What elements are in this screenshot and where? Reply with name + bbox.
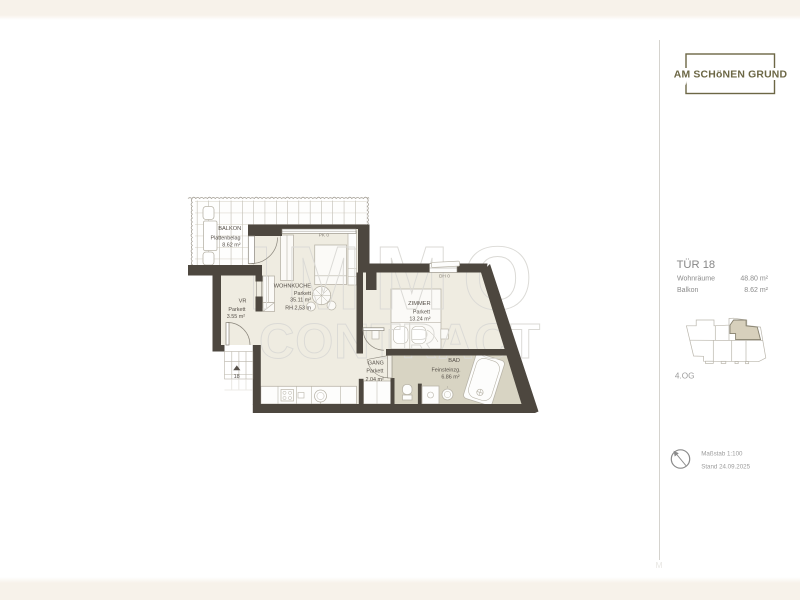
svg-text:ZIMMER: ZIMMER: [408, 301, 430, 307]
svg-text:DH 0: DH 0: [439, 273, 450, 279]
svg-text:Parkett: Parkett: [294, 291, 312, 297]
svg-text:TÜR 18: TÜR 18: [677, 259, 716, 271]
svg-text:48.80 m²: 48.80 m²: [740, 275, 768, 282]
svg-text:8.62 m²: 8.62 m²: [744, 287, 768, 294]
svg-text:PK 0: PK 0: [319, 232, 330, 238]
svg-text:GANG: GANG: [368, 360, 384, 366]
svg-text:M: M: [656, 560, 663, 570]
svg-text:35.11 m²: 35.11 m²: [290, 298, 311, 304]
svg-text:13.24 m²: 13.24 m²: [409, 316, 430, 322]
svg-text:BAD: BAD: [448, 358, 460, 364]
svg-text:6.86 m²: 6.86 m²: [441, 374, 459, 380]
svg-text:18: 18: [234, 374, 240, 380]
svg-text:Parkett: Parkett: [366, 369, 384, 375]
svg-text:Maßstab 1:100: Maßstab 1:100: [701, 451, 743, 458]
svg-text:RH 2,53 m: RH 2,53 m: [285, 306, 311, 312]
svg-text:2.04 m²: 2.04 m²: [366, 377, 384, 383]
svg-text:Stand 24.09.2025: Stand 24.09.2025: [701, 464, 750, 471]
svg-text:Balkon: Balkon: [677, 287, 699, 294]
svg-text:Plattenbelag: Plattenbelag: [211, 235, 241, 241]
svg-text:4.OG: 4.OG: [675, 371, 695, 380]
svg-text:Parkett: Parkett: [413, 310, 431, 316]
svg-text:Parkett: Parkett: [228, 307, 246, 313]
svg-text:WOHNKÜCHE: WOHNKÜCHE: [274, 283, 312, 290]
svg-text:8.62 m²: 8.62 m²: [222, 242, 240, 248]
svg-text:VR: VR: [239, 298, 247, 304]
svg-text:AM SCHöNEN GRUND: AM SCHöNEN GRUND: [674, 70, 788, 81]
svg-text:BALKON: BALKON: [218, 226, 241, 232]
svg-text:3.55 m²: 3.55 m²: [227, 314, 245, 320]
svg-text:Wohnräume: Wohnräume: [677, 275, 715, 282]
svg-text:Feinsteinzg.: Feinsteinzg.: [432, 368, 461, 374]
